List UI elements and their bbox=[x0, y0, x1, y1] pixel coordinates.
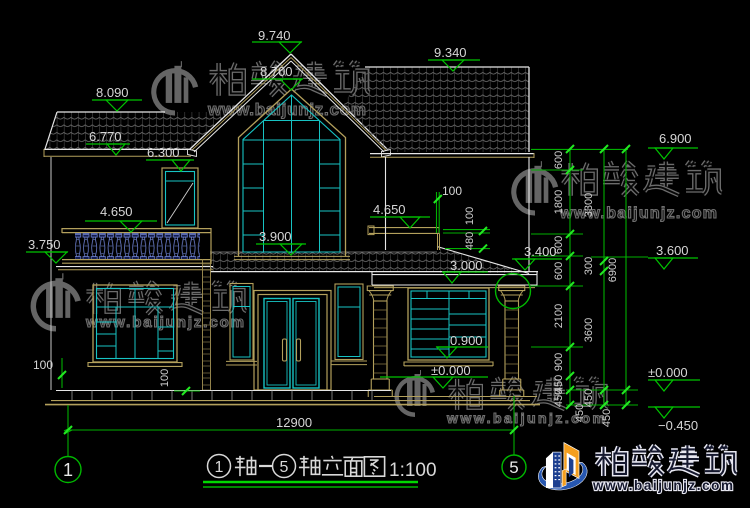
svg-text:12900: 12900 bbox=[276, 415, 312, 430]
svg-text:3600: 3600 bbox=[583, 318, 595, 342]
svg-text:8.090: 8.090 bbox=[96, 85, 129, 100]
svg-text:4.650: 4.650 bbox=[373, 202, 406, 217]
svg-text:8.700: 8.700 bbox=[260, 64, 293, 79]
svg-text:100: 100 bbox=[442, 184, 462, 198]
svg-text:450: 450 bbox=[601, 409, 613, 427]
svg-text:600: 600 bbox=[553, 262, 565, 280]
svg-text:www.baijunjz.com: www.baijunjz.com bbox=[207, 100, 366, 119]
svg-text:6.300: 6.300 bbox=[147, 145, 180, 160]
svg-text:100: 100 bbox=[159, 369, 171, 387]
svg-text:3.600: 3.600 bbox=[656, 243, 689, 258]
svg-text:450: 450 bbox=[553, 389, 565, 407]
svg-text:1: 1 bbox=[63, 460, 73, 480]
svg-text:6.770: 6.770 bbox=[89, 129, 122, 144]
svg-text:100: 100 bbox=[33, 358, 53, 372]
svg-text:9.740: 9.740 bbox=[258, 28, 291, 43]
svg-text:5: 5 bbox=[280, 459, 289, 476]
svg-text:±0.000: ±0.000 bbox=[648, 365, 688, 380]
svg-text:4.650: 4.650 bbox=[100, 204, 133, 219]
svg-text:480: 480 bbox=[464, 232, 476, 250]
svg-text:6900: 6900 bbox=[607, 258, 619, 282]
svg-text:2100: 2100 bbox=[553, 304, 565, 328]
svg-text:3.750: 3.750 bbox=[28, 237, 61, 252]
svg-text:6.900: 6.900 bbox=[659, 131, 692, 146]
svg-text:3.000: 3.000 bbox=[450, 258, 483, 273]
svg-text:5: 5 bbox=[509, 458, 518, 477]
svg-text:9.340: 9.340 bbox=[434, 45, 467, 60]
svg-text:1800: 1800 bbox=[553, 190, 565, 214]
svg-text:3.400: 3.400 bbox=[524, 244, 557, 259]
svg-text:450: 450 bbox=[574, 404, 586, 422]
svg-text:900: 900 bbox=[553, 353, 565, 371]
svg-text:600: 600 bbox=[553, 236, 565, 254]
svg-text:1: 1 bbox=[215, 459, 224, 476]
svg-text:100: 100 bbox=[464, 207, 476, 225]
svg-text:3300: 3300 bbox=[583, 193, 595, 217]
svg-text:0.900: 0.900 bbox=[450, 333, 483, 348]
svg-text:−0.450: −0.450 bbox=[658, 418, 698, 433]
svg-text:600: 600 bbox=[553, 151, 565, 169]
svg-text:±0.000: ±0.000 bbox=[431, 363, 471, 378]
svg-text:3.900: 3.900 bbox=[259, 229, 292, 244]
svg-text:300: 300 bbox=[583, 257, 595, 275]
svg-text:1:100: 1:100 bbox=[389, 460, 437, 481]
